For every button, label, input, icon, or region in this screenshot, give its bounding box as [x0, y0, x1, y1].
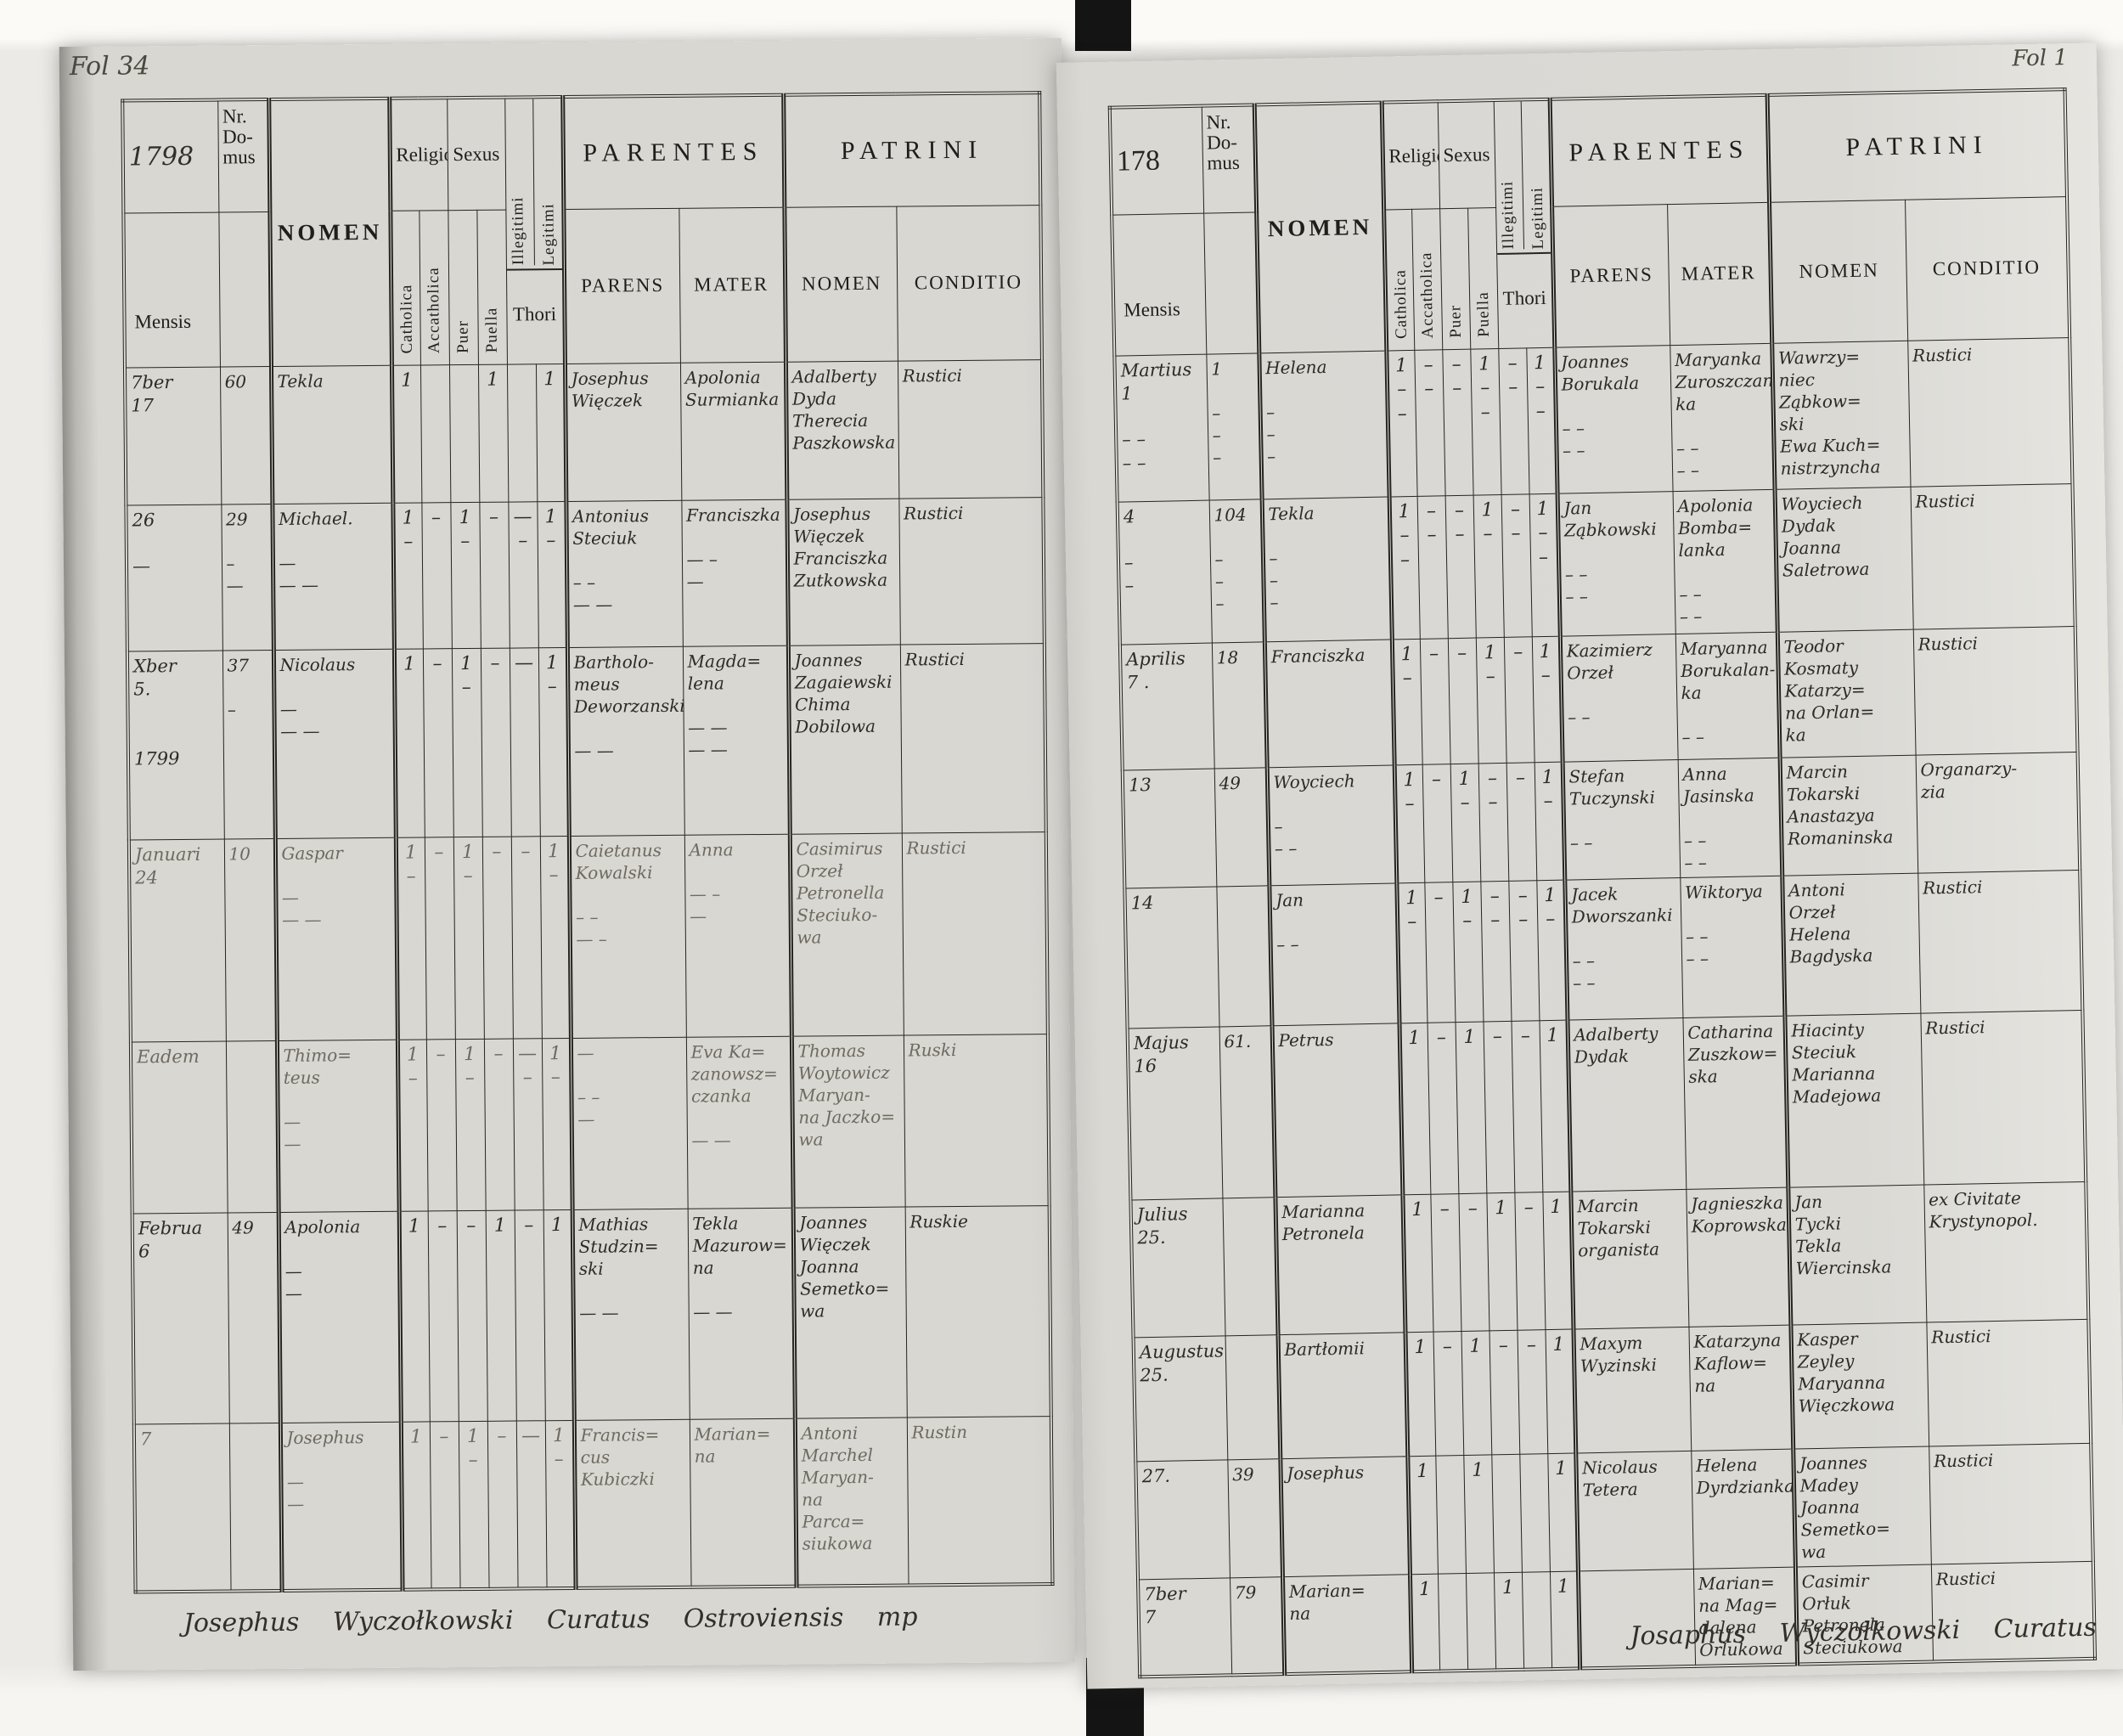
cell-accatholica: – — [1428, 1022, 1459, 1194]
cell-accatholica: – – — [1417, 495, 1448, 639]
cell-catholica: 1 – — [396, 837, 426, 1039]
parens-label: PARENS — [1551, 204, 1670, 347]
religio-label: Religio — [1382, 101, 1439, 209]
cell-nr-domus: 39 — [1227, 1458, 1282, 1577]
curate-signature-left: Josephus Wyczołkowski Curatus Ostroviens… — [183, 1602, 918, 1638]
cell-legitimi: 1 – — [545, 1420, 576, 1588]
cell-nr-domus: 79 — [1230, 1576, 1284, 1675]
cell-mater: Catharina Zuszkow= ska — [1682, 1016, 1788, 1189]
cell-conditio: Rustici — [898, 359, 1043, 498]
cell-nomen: Bartłomii — [1278, 1332, 1408, 1458]
mater-label: MATER — [679, 207, 786, 363]
parentes-label: PARENTES — [1550, 95, 1769, 206]
cell-patrini-nomen: Antoni Orzeł Helena Bagdyska — [1782, 873, 1920, 1016]
cell-patrini-nomen: Woyciech Dydak Joanna Saletrowa — [1775, 487, 1913, 632]
cell-mater: Magda= lena — — — — — [683, 645, 790, 835]
mensis-label: Mensis — [123, 212, 220, 368]
cell-puer: 1 – — [459, 1421, 489, 1589]
cell-mater: Anna — – — — [684, 834, 791, 1037]
cell-conditio: Ruski — [904, 1034, 1050, 1206]
table-row: Augustus 25. Bartłomii 1 – 1 – – 1 Maxym… — [1134, 1319, 2092, 1462]
cell-puer: – — [457, 1210, 487, 1421]
cell-puer: 1 — [1463, 1454, 1494, 1573]
cell-puella: 1 – – — [1470, 348, 1501, 495]
cell-puer: – – — [1445, 495, 1476, 639]
cell-nr-domus: 49 — [1214, 767, 1270, 886]
cell-mater: Anna Jasinska – – – – — [1678, 758, 1782, 877]
cell-accatholica: – — [1420, 638, 1450, 764]
cell-illegitimi: – — [1504, 636, 1535, 763]
sexus-label: Sexus — [447, 98, 505, 211]
year-annotation: 178 — [1110, 106, 1203, 215]
illegitimi-label: Illegitimi — [509, 197, 528, 266]
catholica-label: Catholica — [390, 210, 420, 364]
cell-illegitimi: – — [1518, 1329, 1548, 1454]
cell-parens: Stefan Tuczynski – – — [1563, 759, 1681, 880]
cell-puella: – — [1484, 1021, 1515, 1193]
cell-nomen: Tekla — [271, 365, 392, 504]
mensis-label: Mensis — [1112, 213, 1206, 356]
accatholica-label: Accatholica — [419, 210, 449, 364]
cell-nomen: Marian= na — [1282, 1574, 1411, 1673]
cell-mensis: 7ber 7 — [1138, 1577, 1231, 1677]
cell-parens: Jacek Dworszanki – – – – — [1564, 877, 1682, 1020]
cell-legitimi: 1 — [1545, 1329, 1575, 1454]
cell-mensis: 7 — [134, 1423, 231, 1592]
nr-domus-label: Nr. Do- mus — [1202, 104, 1256, 212]
cell-legitimi: 1 – — [1532, 636, 1563, 763]
cell-mater: Wiktorya – – – – — [1680, 876, 1784, 1017]
cell-mensis: Martius 1 – – – – — [1114, 354, 1208, 502]
cell-mensis: Eadem — [131, 1041, 228, 1214]
table-row: Xber 5. 1799 37 – Nicolaus — — — 1 – 1 –… — [127, 643, 1046, 839]
cell-conditio: Ruskie — [905, 1205, 1051, 1417]
cell-puella: 1 — [1494, 1572, 1523, 1670]
cell-nomen: Jan – – — [1269, 882, 1399, 1025]
cell-legitimi: 1 – — [540, 836, 571, 1038]
cell-patrini-nomen: Casimirus Orzeł Petronella Steciuko- wa — [790, 833, 904, 1036]
cell-nr-domus: 29 – — — [221, 504, 273, 651]
cell-illegitimi: – – — [1508, 880, 1539, 1021]
cell-accatholica: – — [1433, 1331, 1463, 1456]
cell-nr-domus — [1222, 1197, 1277, 1335]
illegitimi-label: Illegitimi — [1498, 181, 1518, 250]
header-row-top: 178 Nr. Do- mus NOMEN Religio Sexus Ille… — [1110, 89, 2067, 215]
cell-legitimi: 1 – — [538, 647, 569, 836]
nomen-column-label: NOMEN — [1254, 103, 1387, 353]
cell-catholica: 1 – – — [1386, 350, 1416, 497]
parentes-label: PARENTES — [562, 95, 784, 209]
table-row: Januari 24 10 Gaspar — — — 1 – – 1 – – –… — [129, 831, 1048, 1041]
cell-conditio: Rustici — [1913, 626, 2078, 755]
binding-strap-top — [1075, 0, 1131, 51]
cell-nr-domus — [1225, 1334, 1281, 1459]
cell-patrini-nomen: Joannes Madey Joanna Semetko= wa — [1793, 1446, 1931, 1567]
cell-mater: Apolonia Surmianka — [680, 362, 786, 500]
cell-mater: Tekla Mazurow= na — — — [688, 1208, 795, 1419]
cell-legitimi: 1 – — [1535, 762, 1565, 881]
cell-puella: 1 — [486, 1210, 516, 1421]
cell-catholica: 1 – — [1396, 882, 1427, 1023]
cell-nr-domus: 18 — [1212, 641, 1267, 768]
cell-puella: – — [481, 648, 511, 837]
patrini-label: PATRINI — [1767, 89, 2067, 202]
cell-puer — [449, 364, 479, 502]
cell-nr-domus: 37 – — [222, 650, 275, 839]
table-row: 13 49 Woyciech – – – 1 – – 1 – – – – 1 –… — [1123, 752, 2081, 888]
patrini-label: PATRINI — [783, 93, 1040, 207]
cell-patrini-nomen: Hiacinty Steciuk Marianna Madejowa — [1784, 1013, 1923, 1187]
cell-illegitimi — [507, 364, 537, 501]
cell-puer: – — [1458, 1192, 1489, 1331]
cell-legitimi: 1 — [543, 1209, 574, 1420]
cell-patrini-nomen: Casimir Orłuk Petronela Steciukowa — [1795, 1564, 1933, 1664]
cell-parens: Josephus Więczek — [565, 363, 681, 501]
cell-nr-domus: 60 — [220, 366, 272, 504]
cell-mensis: 13 — [1123, 769, 1217, 888]
cell-mensis: Aprilis 7 . — [1120, 643, 1214, 770]
patrini-nomen-label: NOMEN — [784, 206, 898, 362]
cell-nomen: Josephus — [1280, 1456, 1410, 1576]
cell-mensis: 26 — — [126, 504, 222, 651]
table-row: 7 Josephus — — 1 – 1 – – — 1 – Francis= … — [134, 1416, 1053, 1592]
cell-nomen: Woyciech – – – — [1267, 764, 1397, 885]
cell-legitimi: 1 — [536, 364, 566, 501]
cell-patrini-nomen: Wawrzy= niec Ząbkow= ski Ewa Kuch= nistr… — [1771, 341, 1910, 489]
cell-puella: – — [482, 837, 513, 1039]
cell-nomen: Petrus — [1272, 1023, 1403, 1197]
cell-conditio: Rustin — [907, 1416, 1053, 1585]
folio-annotation-left: Fol 34 — [70, 51, 150, 82]
cell-legitimi: 1 – — [542, 1038, 572, 1209]
cell-accatholica: – — [425, 837, 455, 1039]
cell-illegitimi: – — [1514, 1192, 1545, 1330]
header-row-top: 1798 Nr. Do- mus NOMEN Religio Sexus Ill… — [122, 93, 1040, 212]
cell-accatholica: – — [1422, 764, 1453, 882]
cell-puer: 1 — [1461, 1330, 1491, 1455]
cell-patrini-nomen: Jan Tycki Tekla Wiercinska — [1788, 1185, 1926, 1325]
cell-mater: Maryanka Zuroszczan- ka – – – – — [1670, 343, 1774, 491]
year-annotation: 1798 — [122, 100, 218, 213]
religio-label: Religio — [389, 98, 448, 211]
cell-catholica: 1 – — [1394, 764, 1425, 883]
entries-left: 7ber 17 60 Tekla 1 1 1 Josephus Więczek … — [125, 359, 1053, 1592]
cell-legitimi: 1 – — [537, 501, 567, 647]
cell-mater: Katarzyna Kaflow= na — [1688, 1325, 1793, 1451]
table-row: 26 — 29 – — Michael. — — — 1 – – 1 – – —… — [126, 497, 1045, 651]
cell-puella: – – — [1478, 763, 1509, 882]
cell-legitimi: 1 — [1550, 1570, 1580, 1668]
table-row: Aprilis 7 . 18 Franciszka 1 – – – 1 – – … — [1120, 626, 2078, 770]
cell-illegitimi: – — [1512, 1020, 1543, 1192]
legitimacy-box: Illegitimi Legitimi Thori — [504, 97, 565, 364]
cell-catholica: 1 — [1407, 1456, 1438, 1575]
cell-accatholica: – – — [1414, 349, 1444, 496]
cell-catholica: 1 — [391, 364, 421, 502]
puella-label: Puella — [1467, 207, 1498, 349]
nr-domus-subcell — [1203, 211, 1259, 353]
cell-nomen: Helena – – – — [1259, 351, 1388, 499]
cell-legitimi: 1 – – — [1526, 347, 1557, 494]
table-row: 27. 39 Josephus 1 1 1 Nicolaus Tetera He… — [1135, 1443, 2093, 1580]
cell-puer — [1466, 1572, 1495, 1670]
cell-nr-domus: 1 – – – — [1206, 352, 1261, 499]
cell-mensis: Julius 25. — [1130, 1198, 1225, 1337]
cell-illegitimi: — – — [513, 1038, 543, 1209]
table-row: Majus 16 61. Petrus 1 – 1 – – 1 Adalbert… — [1128, 1010, 2086, 1200]
cell-puella — [1491, 1454, 1522, 1573]
cell-catholica: 1 — [399, 1210, 430, 1421]
cell-patrini-nomen: Antoni Marchel Maryan- na Parca= siukowa — [795, 1418, 909, 1587]
puer-label: Puer — [448, 210, 478, 364]
cell-puer: 1 – — [1450, 764, 1481, 882]
column-divider — [532, 99, 535, 265]
cell-puer: 1 – — [1452, 882, 1483, 1023]
cell-nomen: Nicolaus — — — — [273, 649, 396, 838]
cell-nr-domus: 49 — [228, 1212, 280, 1423]
cell-accatholica — [420, 364, 450, 502]
cell-catholica: 1 — [1405, 1332, 1435, 1457]
cell-illegitimi: – – — [1498, 347, 1529, 494]
nomen-column-label: NOMEN — [268, 99, 391, 366]
sexus-label: Sexus — [1438, 100, 1495, 208]
cell-accatholica — [1435, 1455, 1466, 1574]
cell-conditio: Organarzy- zia — [1916, 752, 2081, 873]
cell-parens: Marcin Tokarski organista — [1570, 1189, 1688, 1329]
cell-mensis: 14 — [1124, 886, 1219, 1028]
cell-catholica: 1 – — [1392, 639, 1422, 765]
cell-mater: Franciszka — – — — [681, 499, 787, 646]
cell-mensis: Augustus 25. — [1134, 1335, 1228, 1461]
conditio-label: CONDITIO — [896, 205, 1042, 360]
cell-puer: 1 – — [453, 837, 484, 1039]
table-row: Eadem Thimo= teus — — 1 – – 1 – – — – 1 … — [131, 1034, 1050, 1213]
cell-legitimi: 1 — [1540, 1020, 1571, 1192]
patrini-nomen-label: NOMEN — [1769, 200, 1907, 343]
cell-puella: 1 – — [1476, 637, 1506, 764]
cell-parens: Maxym Wyzinski — [1574, 1327, 1692, 1453]
cell-nr-domus: 10 — [224, 838, 277, 1041]
cell-illegitimi — [1522, 1571, 1551, 1669]
cell-patrini-nomen: Teodor Kosmaty Katarzy= na Orlan= ka — [1777, 629, 1916, 758]
cell-conditio: Rustici — [898, 497, 1045, 644]
cell-mensis: Majus 16 — [1128, 1026, 1223, 1199]
puella-label: Puella — [476, 210, 507, 364]
cell-illegitimi: — — [510, 647, 540, 836]
cell-puer: – — [1448, 638, 1478, 764]
conditio-label: CONDITIO — [1905, 196, 2070, 341]
cell-legitimi: 1 — [1542, 1192, 1573, 1330]
cell-mensis: Januari 24 — [129, 839, 226, 1042]
cell-puer: 1 – — [455, 1039, 486, 1210]
legitimi-label: Legitimi — [1528, 186, 1547, 249]
cell-patrini-nomen: Marcin Tokarski Anastazya Romaninska — [1780, 755, 1918, 876]
column-divider — [1520, 101, 1523, 249]
page-left: Fol 34 1798 Nr. Do- mus NOMEN Religio Se… — [59, 38, 1076, 1671]
cell-accatholica: – — [430, 1421, 460, 1589]
cell-mensis: 27. — [1135, 1459, 1230, 1579]
cell-mensis: Xber 5. 1799 — [127, 651, 224, 840]
nr-domus-subcell — [218, 211, 271, 367]
cell-parens: Francis= cus Kubiczki — [574, 1419, 691, 1588]
cell-catholica: 1 – – — [1389, 496, 1420, 640]
cell-puella: 1 — [478, 364, 508, 502]
catholica-label: Catholica — [1383, 209, 1414, 351]
cell-patrini-nomen: Joannes Zagaiewski Chima Dobilowa — [788, 645, 902, 834]
cell-illegitimi: — – — [508, 501, 538, 647]
cell-accatholica: – — [423, 648, 453, 837]
cell-conditio: Rustici — [1917, 870, 2082, 1013]
cell-accatholica: – — [1424, 882, 1455, 1023]
table-row: Julius 25. Marianna Petronela 1 – – 1 – … — [1130, 1181, 2088, 1338]
cell-parens: Adalberty Dydak — [1568, 1017, 1687, 1192]
register-table-right: 178 Nr. Do- mus NOMEN Religio Sexus Ille… — [1108, 87, 2097, 1678]
cell-conditio: Rustici — [1931, 1561, 2095, 1661]
cell-conditio: ex Civitate Krystynopol. — [1923, 1181, 2088, 1322]
cell-accatholica: – — [1430, 1193, 1461, 1332]
cell-conditio: Rustici — [1907, 337, 2072, 487]
cell-accatholica: – — [421, 502, 452, 648]
cell-patrini-nomen: Adalberty Dyda Therecia Paszkowska — [786, 361, 898, 499]
cell-conditio: Rustici — [1926, 1319, 2091, 1446]
cell-parens — [1578, 1569, 1695, 1668]
cell-mensis: 4 – – — [1118, 500, 1212, 645]
cell-catholica: 1 — [401, 1421, 431, 1589]
cell-conditio: Rustici — [902, 831, 1048, 1034]
table-row: 4 – – 104 – – – Tekla – – – 1 – – – – – … — [1118, 483, 2075, 645]
cell-patrini-nomen: Kasper Zeyley Maryanna Więczkowa — [1790, 1322, 1929, 1449]
cell-conditio: Rustici — [900, 643, 1046, 832]
thori-label: Thori — [1497, 254, 1552, 343]
page-right: Fol 1 178 Nr. Do- mus NOMEN Religio Sexu… — [1056, 42, 2123, 1688]
header-row-sub: Mensis Catholica Accatholica Puer Puella… — [1112, 196, 2070, 356]
cell-parens: Antonius Steciuk – – — — — [566, 500, 682, 647]
cell-illegitimi — [1519, 1453, 1550, 1572]
cell-catholica: 1 — [1410, 1574, 1439, 1671]
cell-puella: – – — [1480, 881, 1511, 1022]
cell-nr-domus — [1216, 885, 1271, 1026]
cell-puella: 1 – — [1473, 494, 1504, 638]
cell-illegitimi: – — [511, 836, 542, 1038]
cell-mensis: Februa 6 — [132, 1213, 229, 1424]
cell-conditio: Rustici — [1920, 1010, 2086, 1185]
cell-puer: 1 – — [452, 648, 482, 837]
register-table-left: 1798 Nr. Do- mus NOMEN Religio Sexus Ill… — [121, 91, 1054, 1593]
cell-mater: Marian= na — [690, 1418, 797, 1587]
cell-nomen: Michael. — — — — [272, 503, 393, 650]
cell-nr-domus — [229, 1423, 282, 1592]
table-row: Februa 6 49 Apolonia — — 1 – – 1 – 1 Mat… — [132, 1205, 1051, 1423]
cell-mater: Jagnieszka Koprowska — [1686, 1187, 1790, 1327]
cell-illegitimi: — — [516, 1420, 547, 1588]
puer-label: Puer — [1439, 208, 1470, 350]
cell-puella: – — [479, 502, 510, 648]
cell-puella: – — [484, 1039, 515, 1210]
cell-accatholica: – — [428, 1210, 459, 1421]
cell-mensis: 7ber 17 — [125, 367, 221, 505]
cell-mater: Helena Dyrdzianka — [1691, 1449, 1795, 1569]
cell-catholica: 1 — [394, 648, 425, 837]
cell-parens: Nicolaus Tetera — [1575, 1451, 1693, 1571]
cell-mater: Apolonia Bomba= lanka – – – – — [1673, 489, 1777, 634]
cell-puer: – – — [1442, 349, 1473, 496]
cell-puella: – — [1489, 1330, 1519, 1455]
parens-label: PARENS — [563, 208, 680, 364]
table-row: Martius 1 – – – – 1 – – – Helena – – – 1… — [1114, 337, 2072, 502]
cell-patrini-nomen: Joannes Więczek Joanna Semetko= wa — [793, 1207, 907, 1418]
cell-catholica: 1 — [1402, 1194, 1433, 1333]
cell-nomen: Marianna Petronela — [1275, 1194, 1405, 1334]
cell-illegitimi: – — [1506, 762, 1537, 881]
cell-nomen: Josephus — — — [280, 1422, 403, 1591]
cell-conditio: Rustici — [1929, 1443, 2093, 1564]
cell-accatholica: – — [426, 1039, 457, 1210]
cell-conditio: Rustici — [1911, 483, 2075, 629]
cell-parens: Caietanus Kowalski – – — – — [569, 835, 686, 1038]
cell-puella: – — [487, 1421, 518, 1589]
cell-puella: 1 — [1486, 1192, 1517, 1331]
cell-nomen: Gaspar — — — — [275, 837, 397, 1040]
cell-illegitimi: – – — [1501, 493, 1532, 637]
accatholica-label: Accatholica — [1411, 208, 1442, 350]
cell-legitimi: 1 – — [1536, 880, 1567, 1021]
register-scan: Fol 34 1798 Nr. Do- mus NOMEN Religio Se… — [0, 0, 2123, 1736]
cell-parens: Jan Ząbkowski – – – – — [1557, 491, 1675, 636]
cell-nr-domus: 61. — [1219, 1025, 1275, 1198]
cell-mater: Marian= na Mag= dalena Orlukowa — [1693, 1567, 1797, 1666]
mater-label: MATER — [1667, 202, 1771, 345]
cell-nomen: Thimo= teus — — — [277, 1040, 399, 1212]
table-row: 7ber 17 60 Tekla 1 1 1 Josephus Więczek … — [125, 359, 1043, 504]
cell-parens: Joannes Borukala – – – – — [1554, 345, 1672, 493]
cell-catholica: 1 — [1399, 1023, 1431, 1195]
cell-illegitimi: – — [515, 1209, 545, 1420]
folio-annotation-right: Fol 1 — [2012, 45, 2068, 71]
cell-nr-domus — [226, 1040, 279, 1213]
cell-catholica: 1 – — [392, 502, 422, 648]
cell-nomen: Apolonia — — — [279, 1211, 401, 1423]
table-row: 14 Jan – – 1 – – 1 – – – – – 1 – Jacek D… — [1124, 870, 2082, 1029]
legitimacy-box: Illegitimi Legitimi Thori — [1494, 99, 1555, 348]
cell-catholica: 1 – — [397, 1039, 428, 1210]
cell-mater: Maryanna Borukalan- ka – – — [1675, 632, 1780, 759]
cell-mater: Eva Ka= zanowsz= czanka — — — [686, 1036, 793, 1209]
cell-nomen: Franciszka — [1264, 639, 1394, 767]
cell-legitimi: 1 – – — [1529, 493, 1560, 637]
header-row-sub: Mensis Catholica Accatholica Puer Puella… — [123, 205, 1042, 367]
cell-accatholica — [1438, 1573, 1467, 1671]
legitimi-label: Legitimi — [540, 203, 560, 266]
cell-nr-domus: 104 – – – — [1209, 499, 1264, 642]
cell-nomen: Tekla – – – — [1262, 497, 1392, 642]
entries-right: Martius 1 – – – – 1 – – – Helena – – – 1… — [1114, 337, 2095, 1677]
cell-parens: Bartholo- meus Deworzanski — — — [567, 646, 684, 836]
cell-patrini-nomen: Thomas Woytowicz Maryan- na Jaczko= wa — [791, 1035, 905, 1208]
cell-legitimi: 1 — [1547, 1452, 1578, 1571]
cell-parens: Mathias Studzin= ski — — — [572, 1209, 690, 1420]
nr-domus-label: Nr. Do- mus — [217, 99, 269, 212]
cell-puer: 1 – — [450, 502, 480, 648]
cell-patrini-nomen: Josephus Więczek Franciszka Zutkowska — [786, 499, 899, 645]
cell-puer: 1 — [1456, 1021, 1487, 1193]
thori-label: Thori — [507, 270, 563, 359]
cell-parens: Kazimierz Orzeł – – — [1560, 634, 1678, 762]
cell-parens: — – – — — [571, 1037, 688, 1209]
